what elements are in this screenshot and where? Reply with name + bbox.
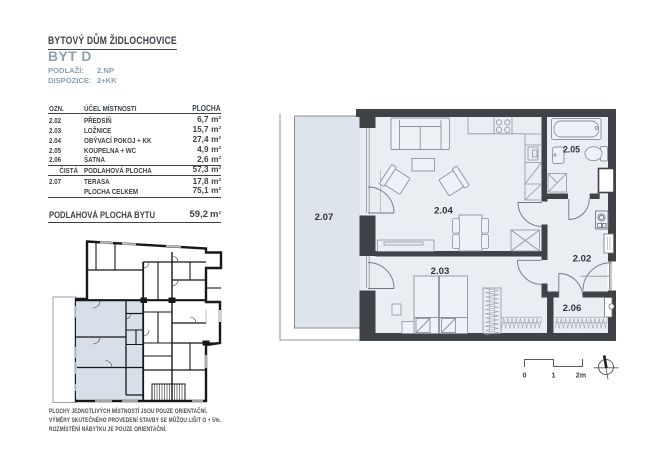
- svg-text:2.02: 2.02: [573, 254, 592, 265]
- svg-text:2.05: 2.05: [563, 144, 580, 154]
- svg-text:0: 0: [523, 371, 527, 380]
- svg-text:2.04: 2.04: [434, 206, 453, 217]
- svg-text:2m: 2m: [576, 371, 586, 380]
- svg-text:2.06: 2.06: [563, 303, 582, 314]
- svg-text:2.07: 2.07: [315, 212, 334, 223]
- svg-text:1: 1: [552, 371, 556, 380]
- svg-text:2.03: 2.03: [431, 266, 450, 277]
